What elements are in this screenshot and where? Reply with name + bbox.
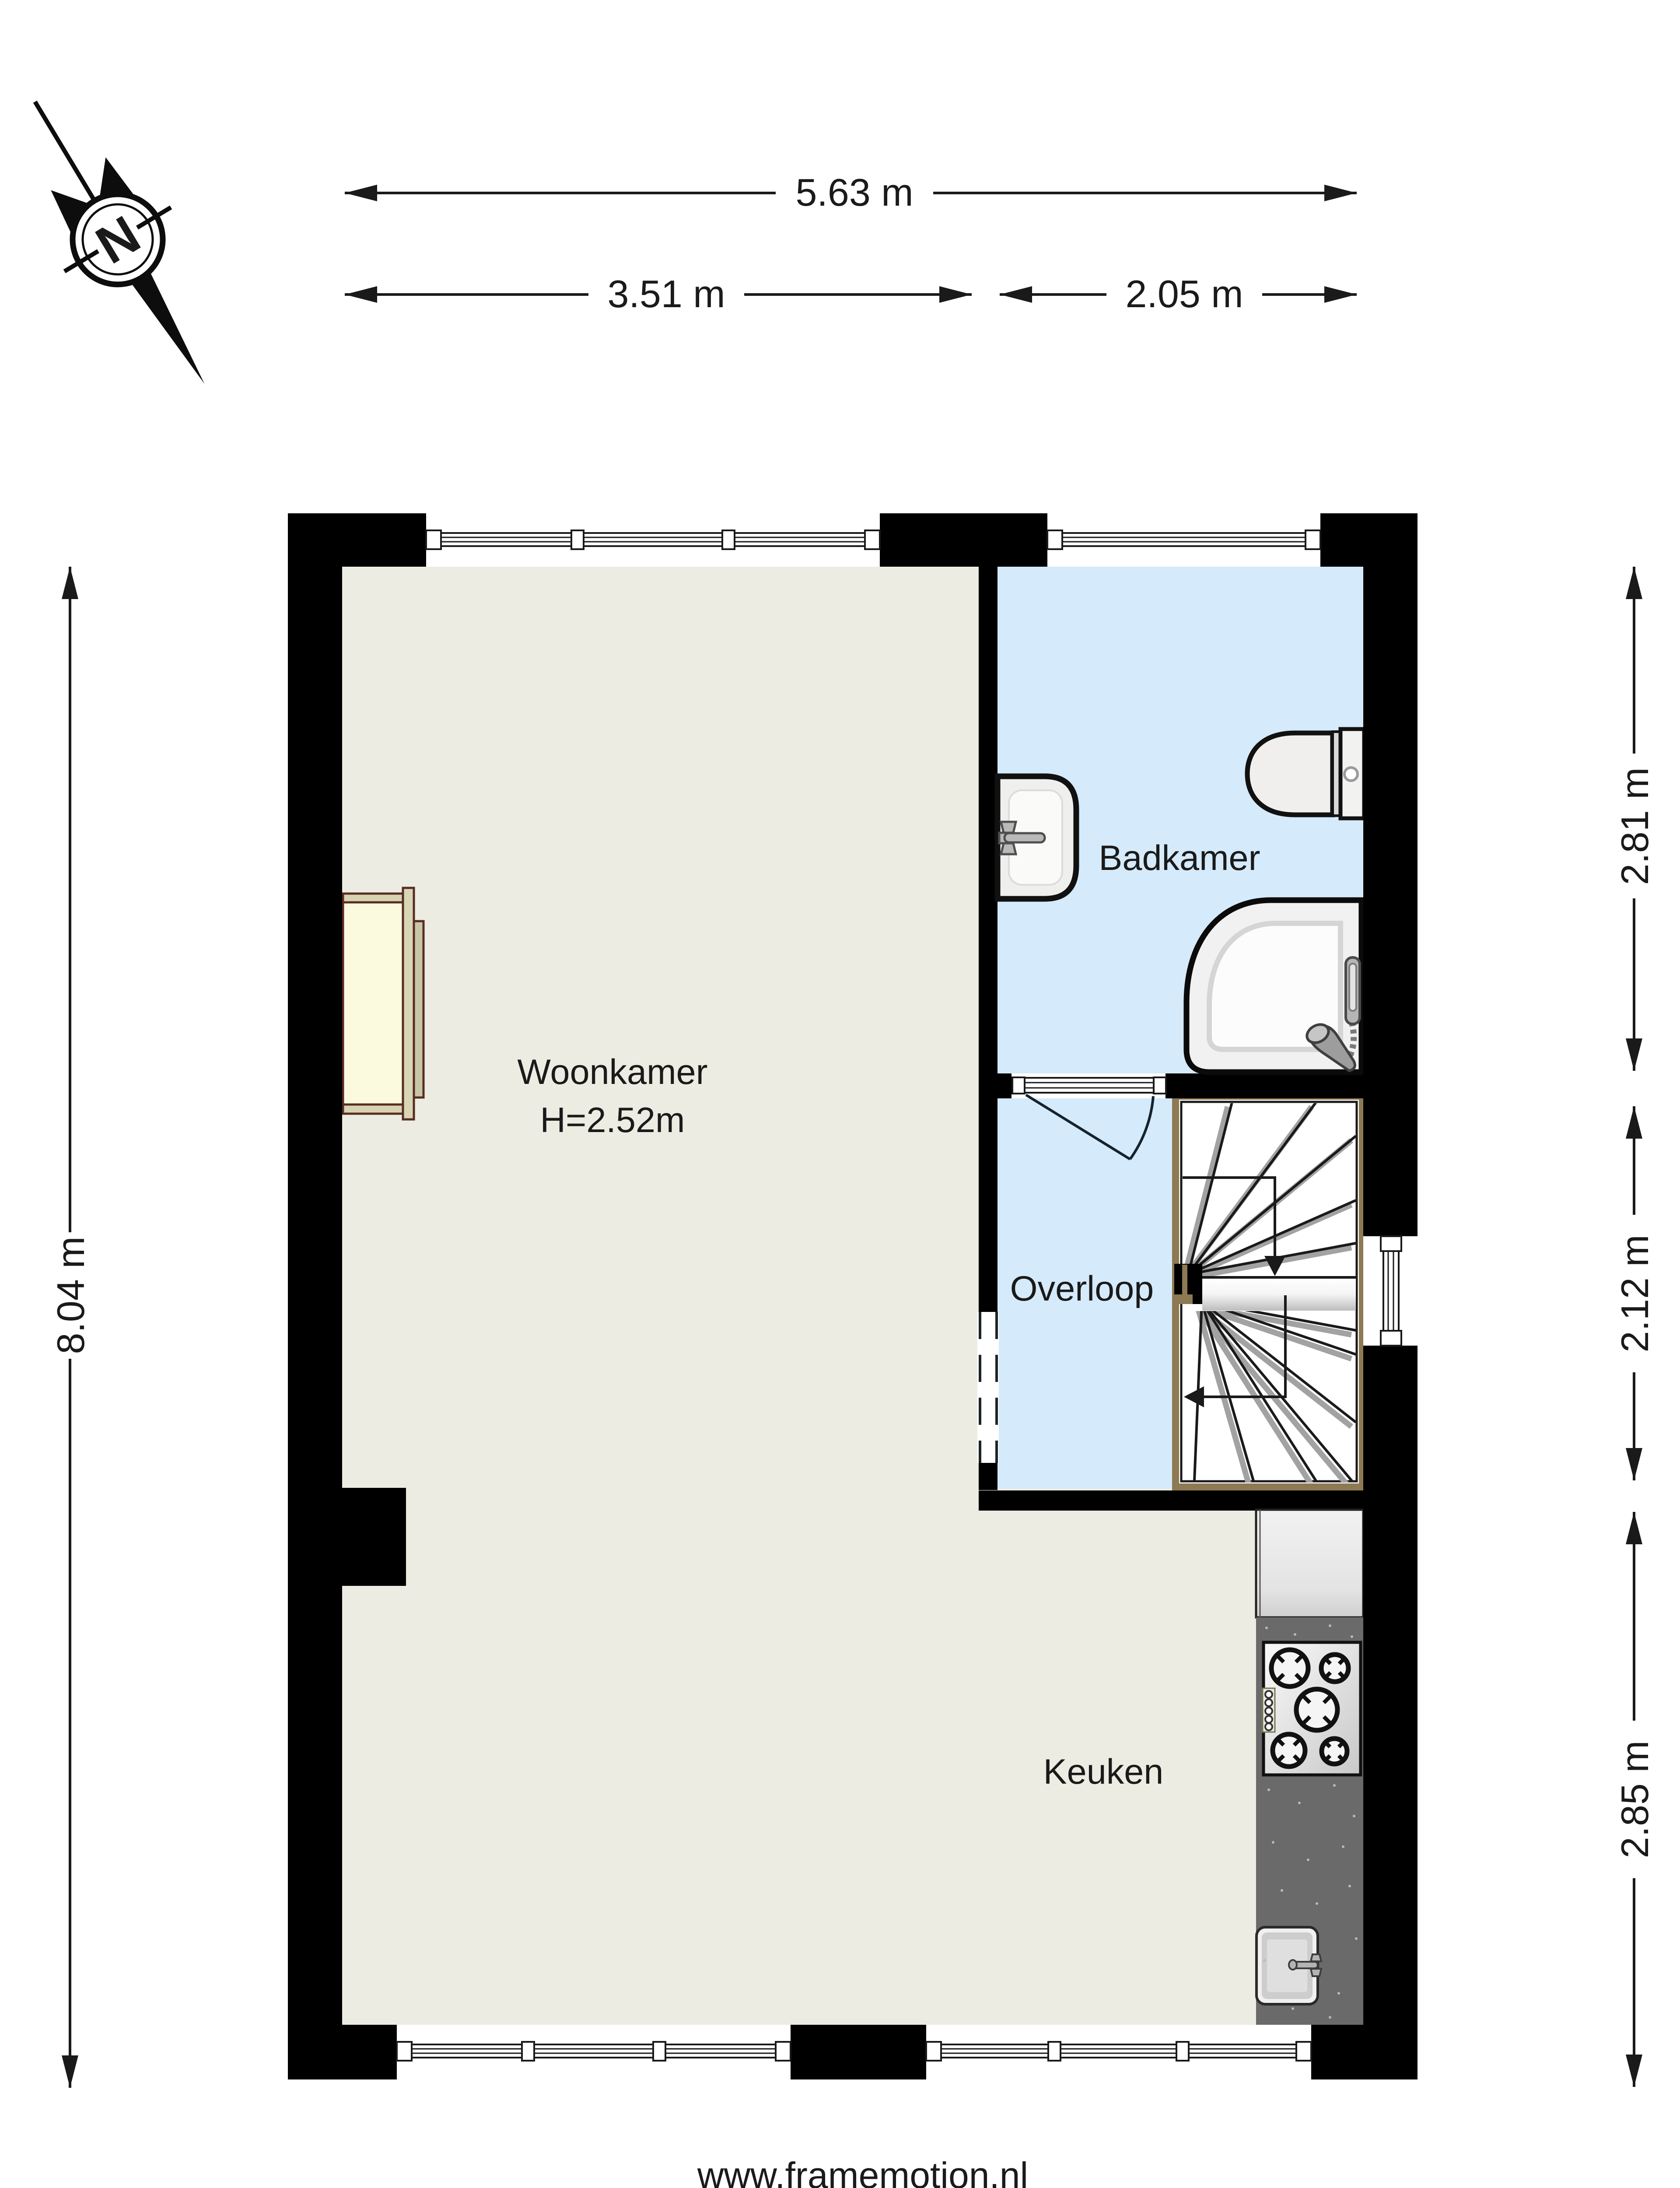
svg-text:3.51 m: 3.51 m bbox=[607, 272, 725, 316]
svg-text:Overloop: Overloop bbox=[1010, 1269, 1154, 1308]
svg-text:2.81 m: 2.81 m bbox=[1613, 767, 1656, 885]
svg-text:www.framemotion.nl: www.framemotion.nl bbox=[697, 2155, 1028, 2188]
svg-text:2.85 m: 2.85 m bbox=[1613, 1740, 1656, 1858]
svg-text:Woonkamer: Woonkamer bbox=[517, 1052, 707, 1092]
svg-text:2.05 m: 2.05 m bbox=[1125, 272, 1243, 316]
svg-text:Badkamer: Badkamer bbox=[1099, 838, 1260, 878]
svg-text:Keuken: Keuken bbox=[1043, 1752, 1164, 1792]
svg-text:2.12 m: 2.12 m bbox=[1613, 1234, 1656, 1352]
svg-text:H=2.52m: H=2.52m bbox=[540, 1101, 685, 1140]
svg-text:8.04 m: 8.04 m bbox=[49, 1236, 92, 1354]
svg-text:5.63 m: 5.63 m bbox=[795, 171, 913, 214]
